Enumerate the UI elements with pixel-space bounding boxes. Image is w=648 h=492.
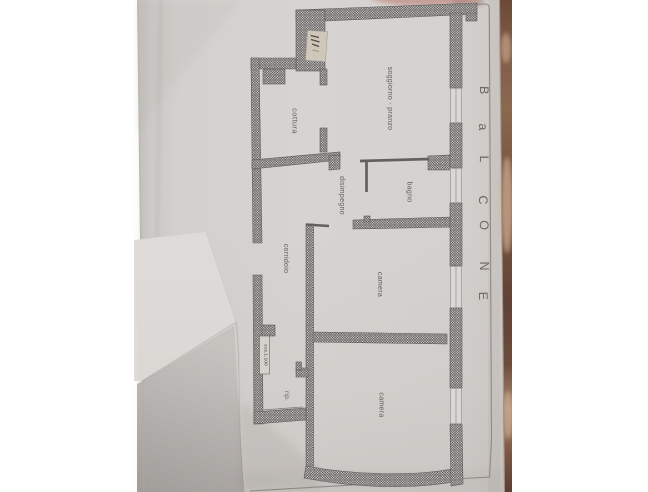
svg-text:disimpegno: disimpegno bbox=[338, 176, 345, 215]
svg-text:a: a bbox=[476, 123, 490, 130]
svg-text:C: C bbox=[476, 195, 490, 204]
svg-text:sca.1:100: sca.1:100 bbox=[264, 344, 269, 366]
svg-text:bagno: bagno bbox=[406, 182, 413, 203]
svg-text:O: O bbox=[477, 220, 491, 230]
svg-text:camera: camera bbox=[378, 392, 385, 417]
svg-text:B: B bbox=[477, 86, 491, 95]
svg-text:camera: camera bbox=[376, 272, 383, 297]
svg-text:soggiorno - pranzo: soggiorno - pranzo bbox=[386, 67, 393, 131]
svg-text:E: E bbox=[476, 291, 490, 300]
svg-text:corridoio: corridoio bbox=[282, 244, 289, 274]
svg-text:N: N bbox=[477, 261, 491, 270]
svg-text:rip.: rip. bbox=[283, 391, 290, 401]
svg-text:cottura: cottura bbox=[291, 108, 300, 134]
svg-text:L: L bbox=[477, 155, 491, 162]
